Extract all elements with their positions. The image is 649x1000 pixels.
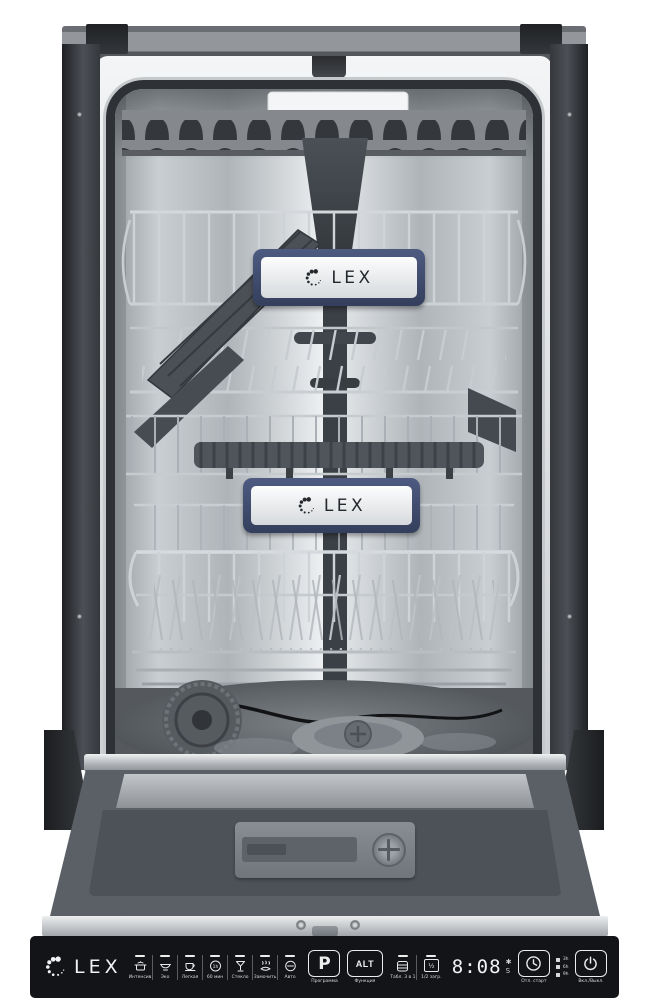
badge-inner-plate: LEX [251,486,412,525]
door-steel-strip [116,774,534,808]
screw [77,112,82,117]
program-indicator-dash [260,955,270,957]
program-label: Интенсив [129,975,152,980]
delay-clock-icon [525,955,542,972]
button-caption: Программа [311,979,338,984]
program-label: 60 мин [207,975,223,980]
function-indicator-dash [398,955,408,957]
dispenser-slider-handle [247,844,286,854]
clock-1h-icon: 1h [209,959,222,973]
screw [77,614,82,619]
tablet-3in1-icon [396,959,409,973]
door-top-lip [84,754,566,772]
tub-interior-graphic [106,80,542,770]
indicator-led [556,958,560,962]
function-tabs-3in1: Табл. 3 в 1 [389,955,416,980]
delay-hour-label: 9h [563,972,569,977]
power-button-group: Вкл./Выкл. [575,950,607,984]
rinse-aid-indicator: ✱ [506,959,512,966]
function-indicator-dash [426,955,436,957]
cabinet-side-left [62,44,100,770]
door-opening-gasket [106,80,542,772]
function-indicator-strip: Табл. 3 в 1 ½ 1/2 загр. [389,955,445,980]
indicator-led [556,973,560,977]
delay-hours-indicators: 3h 6h 9h [556,957,568,977]
delay-start-button-group: Отл. старт [518,950,550,984]
program-indicator-dash [135,955,145,957]
program-select-button[interactable]: P [308,950,340,977]
function-half-load: ½ 1/2 загр. [416,955,445,980]
button-caption: Отл. старт [521,979,546,984]
program-label: Эко [161,975,170,980]
control-panel: LEX Интенсив Эко [30,936,619,998]
program-indicator-dash [285,955,295,957]
badge-brand-text: LEX [331,268,373,288]
open-door-inner-panel [50,770,600,916]
program-light: Легкая [177,955,202,980]
program-eco: Эко [152,955,177,980]
upper-rack-brand-badge: LEX [253,249,425,306]
panel-brand-text: LEX [74,956,122,978]
screw [350,920,360,930]
delay-hour-row: 6h [556,965,568,970]
auto-icon [284,959,297,973]
program-auto: Авто [277,955,302,980]
half-load-icon: ½ [424,959,439,973]
dishwasher-product-photo: LEX LEX [0,0,649,1000]
badge-brand-text: LEX [324,496,366,516]
program-60min: 1h 60 мин [202,955,227,980]
function-label: 1/2 загр. [421,975,441,980]
program-indicator-strip: Интенсив Эко Легкая [128,955,302,980]
salt-indicator: S [506,968,512,975]
delay-hour-label: 3h [563,957,569,962]
program-label: Легкая [182,975,199,980]
lex-logo-icon [304,268,324,288]
screw [567,614,572,619]
cup-icon [184,959,197,973]
door-latch-striker [312,56,346,78]
panel-brand: LEX [44,955,122,979]
svg-text:1h: 1h [212,963,218,969]
program-indicator-dash [160,955,170,957]
program-select-button-group: P Программа [308,950,340,984]
alt-function-button-group: ALT Функция [347,950,383,984]
alt-function-button[interactable]: ALT [347,950,383,977]
function-label: Табл. 3 в 1 [390,975,415,980]
program-indicator-dash [235,955,245,957]
indicator-led [556,965,560,969]
cabinet-side-right [550,44,588,770]
button-caption: Вкл./Выкл. [578,979,603,984]
time-display: 8:08 ✱ S [452,956,512,978]
delay-hour-label: 6h [563,965,569,970]
door-recess [89,810,562,896]
program-glass: Стекло [227,955,252,980]
program-indicator-dash [210,955,220,957]
screw [567,112,572,117]
display-digits: 8:08 [452,956,502,978]
program-label: Авто [284,975,295,980]
screw [296,920,306,930]
rinse-aid-cap [372,833,406,867]
power-button[interactable] [575,950,607,977]
power-icon [582,955,599,972]
display-indicators: ✱ S [506,959,512,975]
delay-hour-row: 9h [556,972,568,977]
button-caption: Функция [354,979,375,984]
delay-start-button[interactable] [518,950,550,977]
lower-rack-brand-badge: LEX [243,478,420,533]
program-intensive: Интенсив [128,955,152,980]
program-label: Стекло [232,975,249,980]
detergent-dispenser [235,822,415,878]
program-indicator-dash [185,955,195,957]
lex-logo-icon [44,955,68,979]
soak-icon [259,959,272,973]
badge-inner-plate: LEX [261,257,417,298]
program-soak: Замочить [252,955,277,980]
pot-icon [134,959,147,973]
cap-slot [387,839,390,861]
delay-hour-row: 3h [556,957,568,962]
wine-glass-icon [234,959,247,973]
bowl-icon [159,959,172,973]
dispenser-lid [242,837,357,863]
lex-logo-icon [297,496,317,516]
program-label: Замочить [254,975,277,980]
